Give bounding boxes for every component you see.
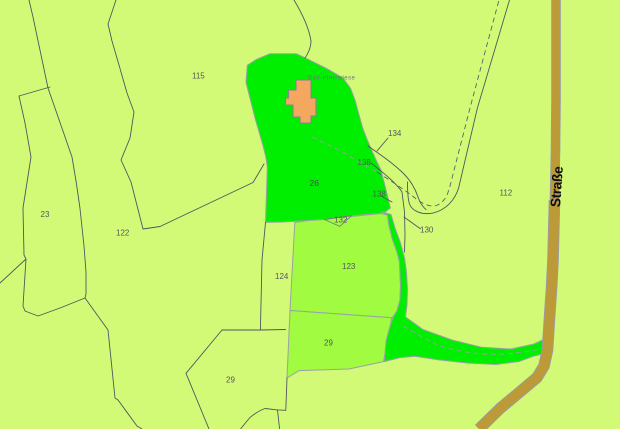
- svg-text:134: 134: [388, 129, 402, 138]
- svg-text:130: 130: [420, 226, 434, 235]
- svg-text:23: 23: [41, 210, 50, 219]
- svg-text:Bad-Pfarrwiese: Bad-Pfarrwiese: [308, 76, 356, 82]
- svg-text:122: 122: [116, 229, 130, 238]
- svg-text:29: 29: [324, 339, 333, 348]
- svg-text:29: 29: [226, 376, 235, 385]
- svg-text:138: 138: [358, 158, 372, 167]
- svg-text:138: 138: [373, 190, 387, 199]
- svg-text:123: 123: [342, 262, 356, 271]
- svg-text:115: 115: [192, 72, 205, 81]
- svg-text:112: 112: [500, 188, 513, 197]
- svg-text:124: 124: [275, 272, 289, 281]
- svg-text:Straße: Straße: [547, 165, 566, 207]
- svg-text:132: 132: [334, 215, 348, 224]
- svg-text:26: 26: [310, 178, 320, 188]
